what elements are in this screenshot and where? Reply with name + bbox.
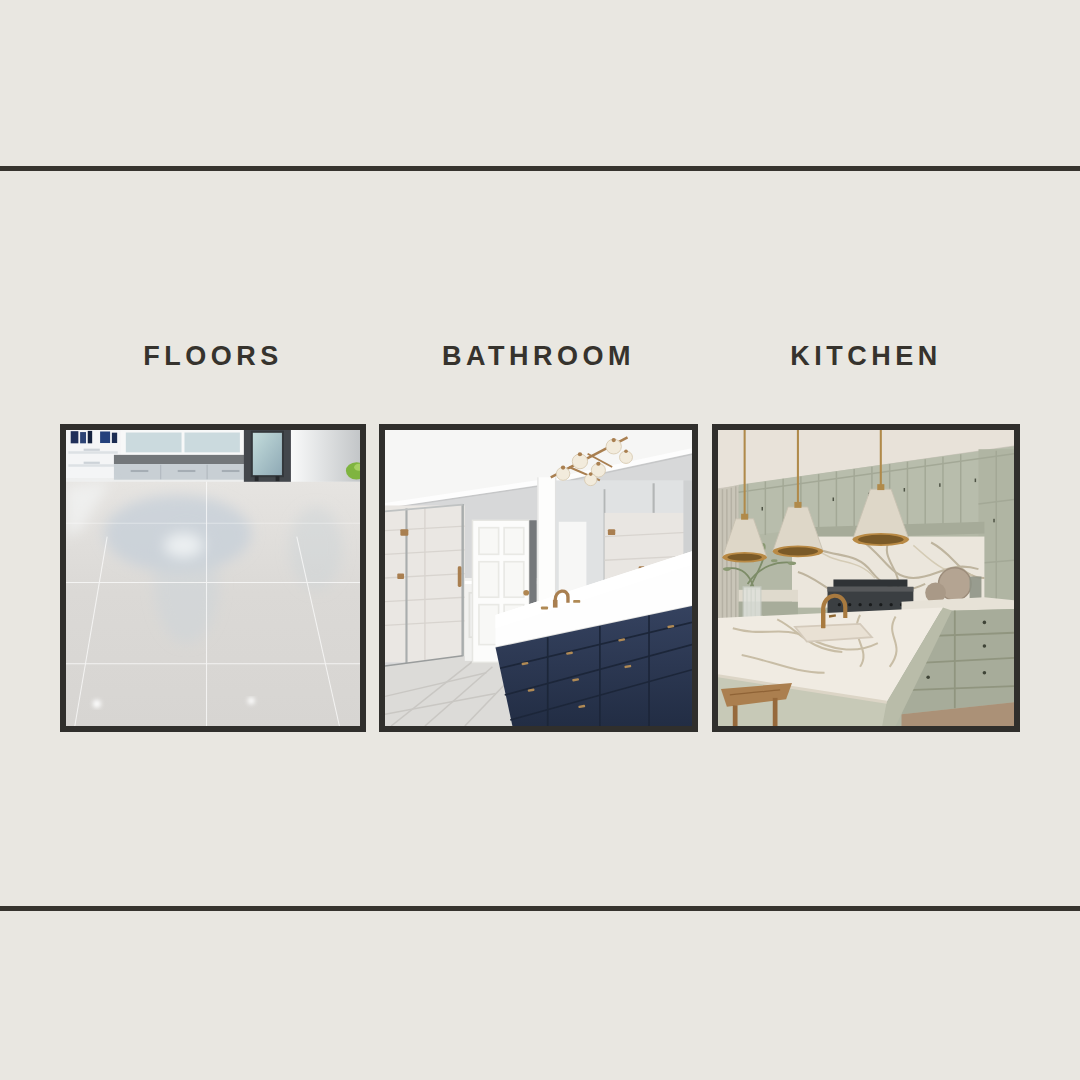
photo-frame-bathroom	[379, 424, 698, 732]
category-bathroom: BATHROOM	[379, 340, 698, 732]
top-divider-line	[0, 166, 1080, 171]
category-kitchen: KITCHEN	[712, 340, 1020, 732]
bottom-divider-line	[0, 906, 1080, 911]
poster-canvas: FLOORS	[0, 0, 1080, 1080]
photo-frame-floors	[60, 424, 366, 732]
category-floors: FLOORS	[60, 340, 366, 732]
category-label-kitchen: KITCHEN	[712, 340, 1020, 376]
kitchen-photo-illustration	[718, 430, 1014, 726]
category-label-floors: FLOORS	[60, 340, 366, 376]
bathroom-photo-illustration	[385, 430, 692, 726]
floors-photo-illustration	[66, 430, 360, 726]
category-label-bathroom: BATHROOM	[379, 340, 698, 376]
photo-frame-kitchen	[712, 424, 1020, 732]
